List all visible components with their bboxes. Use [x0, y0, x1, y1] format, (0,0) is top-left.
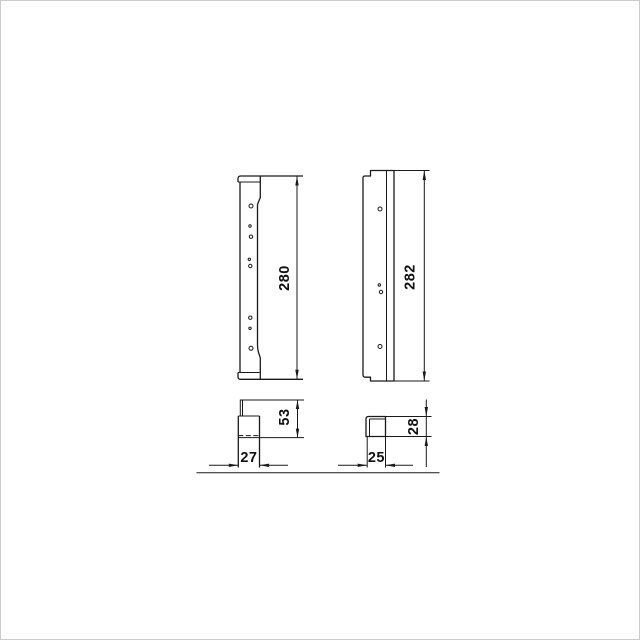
arrowhead-up	[425, 437, 428, 447]
dim-label-280: 280	[277, 265, 293, 291]
dimension-280: 280	[277, 176, 299, 379]
left-profile-top-cap	[238, 176, 303, 182]
dimension-53: 53	[243, 400, 305, 438]
technical-drawing: 280 282 53	[1, 1, 639, 639]
hole	[249, 225, 251, 227]
dimension-282: 282	[394, 171, 430, 382]
right-profile-outline	[363, 171, 394, 382]
section-flange	[240, 400, 242, 416]
hole	[379, 290, 382, 293]
drawing-canvas: 280 282 53	[0, 0, 640, 640]
arrowhead-right	[358, 464, 368, 467]
arrowhead-down	[295, 370, 298, 380]
arrowhead-left	[260, 464, 270, 467]
arrowhead-down	[423, 372, 426, 382]
dimension-25: 25	[338, 450, 413, 467]
dim-label-25: 25	[368, 450, 385, 466]
right-profile-view	[363, 171, 394, 382]
hole	[249, 264, 252, 267]
arrowhead-right	[229, 464, 239, 467]
hole	[249, 327, 251, 329]
dimension-27: 27	[209, 450, 288, 467]
dim-label-282: 282	[403, 264, 419, 290]
hole	[249, 346, 253, 350]
hole	[378, 207, 382, 211]
dim-label-27: 27	[240, 450, 257, 466]
hole	[378, 345, 382, 349]
hole	[248, 258, 250, 260]
arrowhead-down	[425, 407, 428, 417]
hole	[378, 284, 380, 286]
left-profile-right-edge	[258, 176, 261, 379]
arrowhead-down	[296, 429, 299, 438]
arrowhead-up	[423, 171, 426, 181]
hole	[249, 235, 252, 238]
dimension-28: 28	[386, 400, 432, 468]
dim-label-53: 53	[277, 408, 293, 425]
left-profile-view	[238, 176, 303, 379]
hole	[249, 204, 253, 208]
dim-label-28: 28	[406, 418, 422, 435]
arrowhead-left	[386, 464, 396, 467]
hole	[249, 316, 252, 319]
arrowhead-up	[295, 176, 298, 186]
arrowhead-up	[296, 400, 299, 409]
left-profile-bottom-cap	[238, 373, 303, 380]
